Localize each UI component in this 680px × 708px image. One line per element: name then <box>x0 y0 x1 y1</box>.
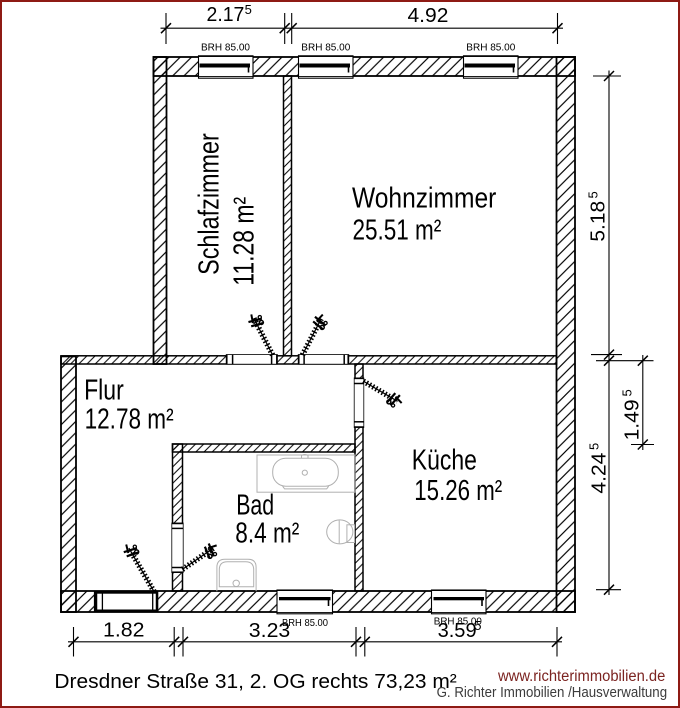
svg-text:8.4 m²: 8.4 m² <box>235 517 299 549</box>
svg-text:Dresdner Straße 31, 2. OG rech: Dresdner Straße 31, 2. OG rechts 73,23 m… <box>54 671 457 693</box>
svg-text:2.17: 2.17 <box>207 4 245 26</box>
svg-text:www.richterimmobilien.de: www.richterimmobilien.de <box>497 668 665 685</box>
svg-text:5.18: 5.18 <box>588 201 610 242</box>
svg-text:11.28 m²: 11.28 m² <box>227 197 259 286</box>
svg-text:BRH 85.00: BRH 85.00 <box>466 41 515 53</box>
svg-text:5: 5 <box>245 2 252 17</box>
svg-text:5: 5 <box>586 191 601 198</box>
svg-text:BRH 85.00: BRH 85.00 <box>434 616 482 628</box>
svg-text:4.24: 4.24 <box>589 453 611 494</box>
svg-text:Wohnzimmer: Wohnzimmer <box>352 182 496 214</box>
svg-text:BRH 85.00: BRH 85.00 <box>201 41 250 53</box>
svg-text:5: 5 <box>620 389 635 396</box>
svg-text:12.78 m²: 12.78 m² <box>85 403 174 435</box>
svg-text:15.26 m²: 15.26 m² <box>414 474 502 506</box>
svg-text:1.82: 1.82 <box>103 619 145 641</box>
svg-text:Küche: Küche <box>412 444 477 476</box>
svg-text:BRH 85.00: BRH 85.00 <box>301 41 350 53</box>
svg-text:G. Richter Immobilien /Hausver: G. Richter Immobilien /Hausverwaltung <box>437 685 667 701</box>
svg-text:Flur: Flur <box>84 373 124 405</box>
svg-text:1.49: 1.49 <box>622 399 644 440</box>
svg-text:Schlafzimmer: Schlafzimmer <box>192 133 224 275</box>
svg-text:25.51 m²: 25.51 m² <box>353 214 442 246</box>
svg-text:Bad: Bad <box>236 488 274 520</box>
svg-text:BRH 85.00: BRH 85.00 <box>282 617 328 629</box>
svg-text:5: 5 <box>587 443 602 450</box>
svg-text:4.92: 4.92 <box>408 5 449 27</box>
